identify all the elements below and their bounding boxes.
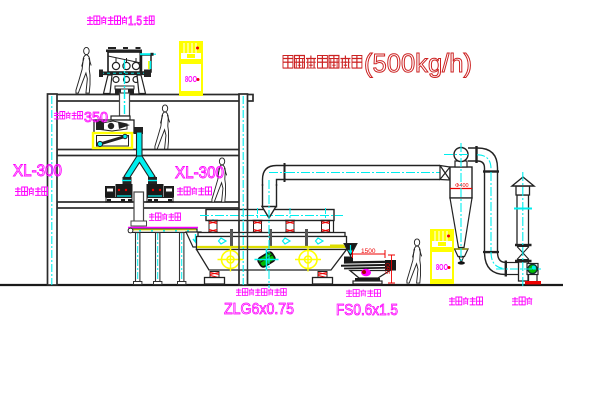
svg-text:FS0.6x1.5: FS0.6x1.5 <box>336 302 398 319</box>
svg-text:(500kg/h): (500kg/h) <box>364 48 472 78</box>
svg-text:ZLG6x0.75: ZLG6x0.75 <box>224 301 294 318</box>
svg-text:350: 350 <box>84 109 108 126</box>
svg-text:XL-300: XL-300 <box>13 161 62 180</box>
svg-text:1.5: 1.5 <box>128 13 142 28</box>
svg-text:Φ400: Φ400 <box>455 183 469 189</box>
svg-text:1500: 1500 <box>361 248 376 255</box>
svg-text:XL-300: XL-300 <box>175 163 224 182</box>
svg-text:560: 560 <box>385 263 392 274</box>
